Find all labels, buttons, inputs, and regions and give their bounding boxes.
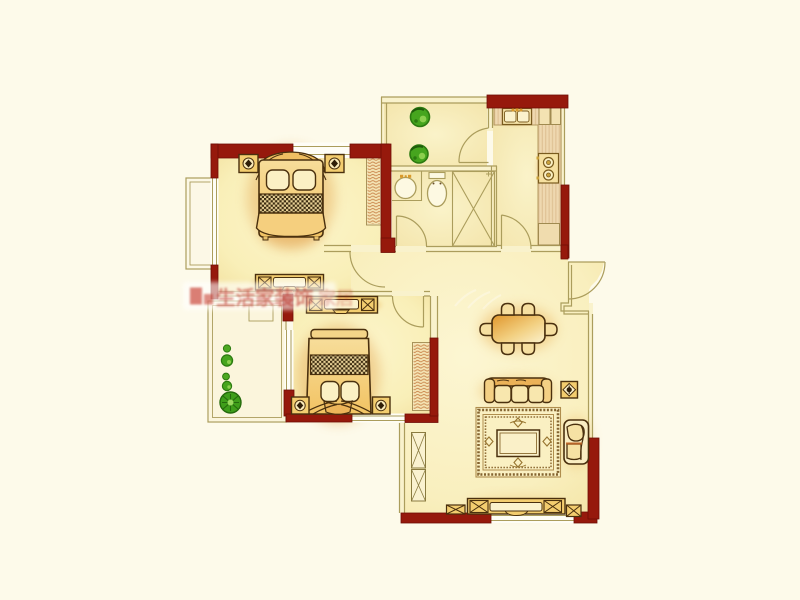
- svg-text:生活家装饰: 生活家装饰: [216, 287, 314, 310]
- svg-text:家居: 家居: [318, 288, 354, 309]
